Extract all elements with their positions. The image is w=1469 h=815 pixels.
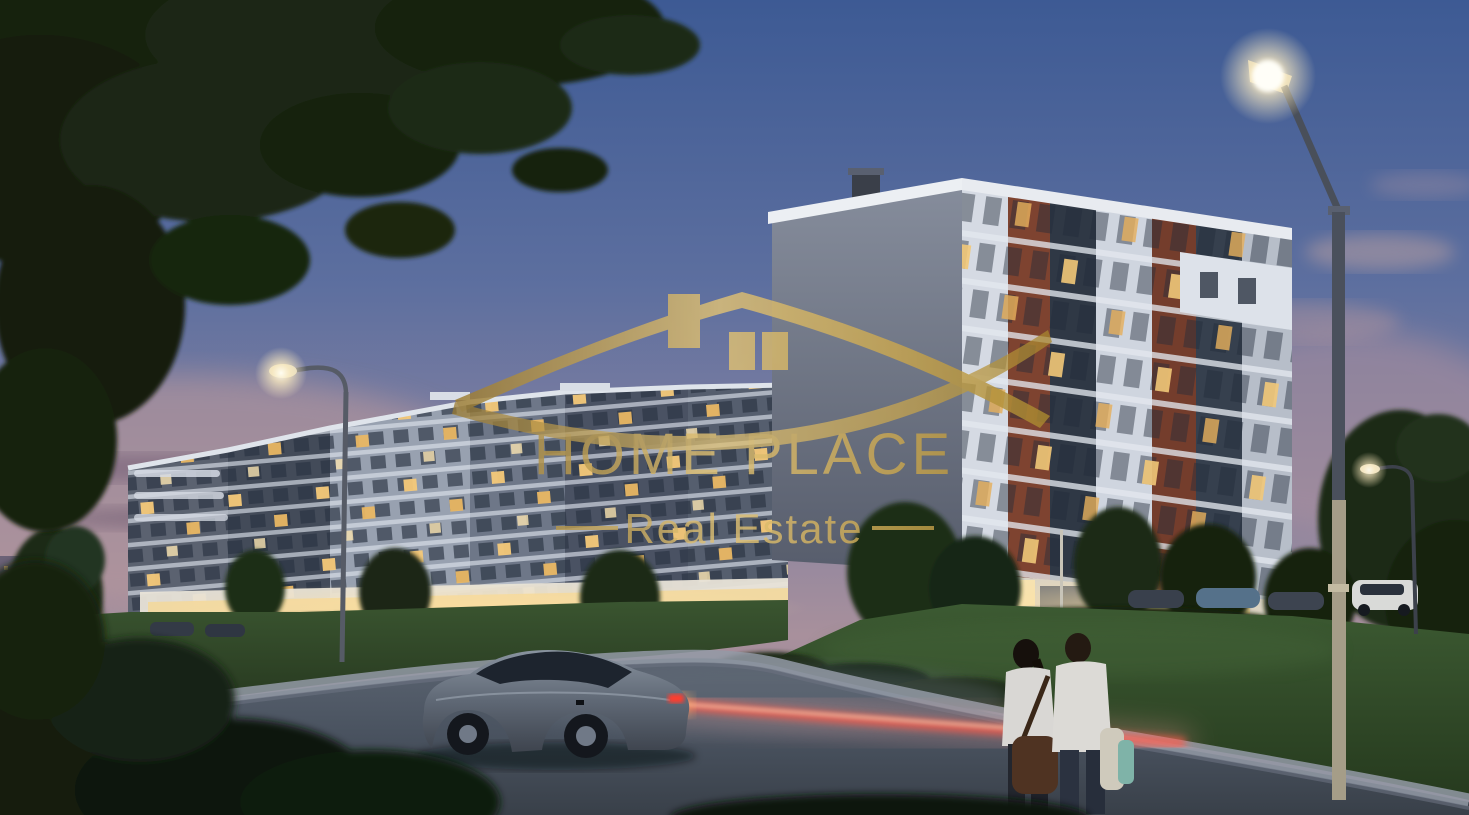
lamp-glow-core xyxy=(1252,60,1284,92)
penthouse-window xyxy=(1200,272,1218,298)
parked-car-blue xyxy=(1196,588,1260,608)
cloud xyxy=(1305,234,1455,270)
pole-collar xyxy=(1328,584,1349,592)
tail-light xyxy=(668,694,684,703)
lamp-glow xyxy=(1351,452,1387,488)
real-estate-subtitle: Real Estate xyxy=(624,505,863,552)
hair xyxy=(1065,633,1091,663)
door-handle xyxy=(576,700,584,705)
parked-car xyxy=(1268,592,1324,610)
penthouse-window xyxy=(1238,278,1256,304)
jeans-leg xyxy=(1060,750,1079,814)
car-rim xyxy=(576,726,596,746)
rooftop-box xyxy=(560,383,610,391)
curved-balcony xyxy=(134,514,228,521)
parked-car xyxy=(205,624,245,637)
curved-balcony xyxy=(134,470,220,477)
car-rim xyxy=(459,725,477,743)
curved-balcony xyxy=(134,492,224,499)
teal-bag xyxy=(1118,740,1134,784)
lamp-pole-lower xyxy=(1332,500,1346,800)
lamp-glow xyxy=(255,347,307,399)
parked-car xyxy=(150,622,194,636)
shoulder-bag xyxy=(1012,736,1058,794)
chimney-cap xyxy=(848,168,884,175)
dusk-real-estate-rendering: HOME PLACE Real Estate xyxy=(0,0,1469,815)
flag-pole xyxy=(1060,530,1063,620)
logo-window xyxy=(762,332,788,370)
logo-window xyxy=(729,332,755,370)
logo-chimney xyxy=(668,294,700,348)
parked-car xyxy=(1128,590,1184,608)
home-place-title: HOME PLACE xyxy=(534,422,954,487)
lamp-pole-upper xyxy=(1332,212,1345,512)
